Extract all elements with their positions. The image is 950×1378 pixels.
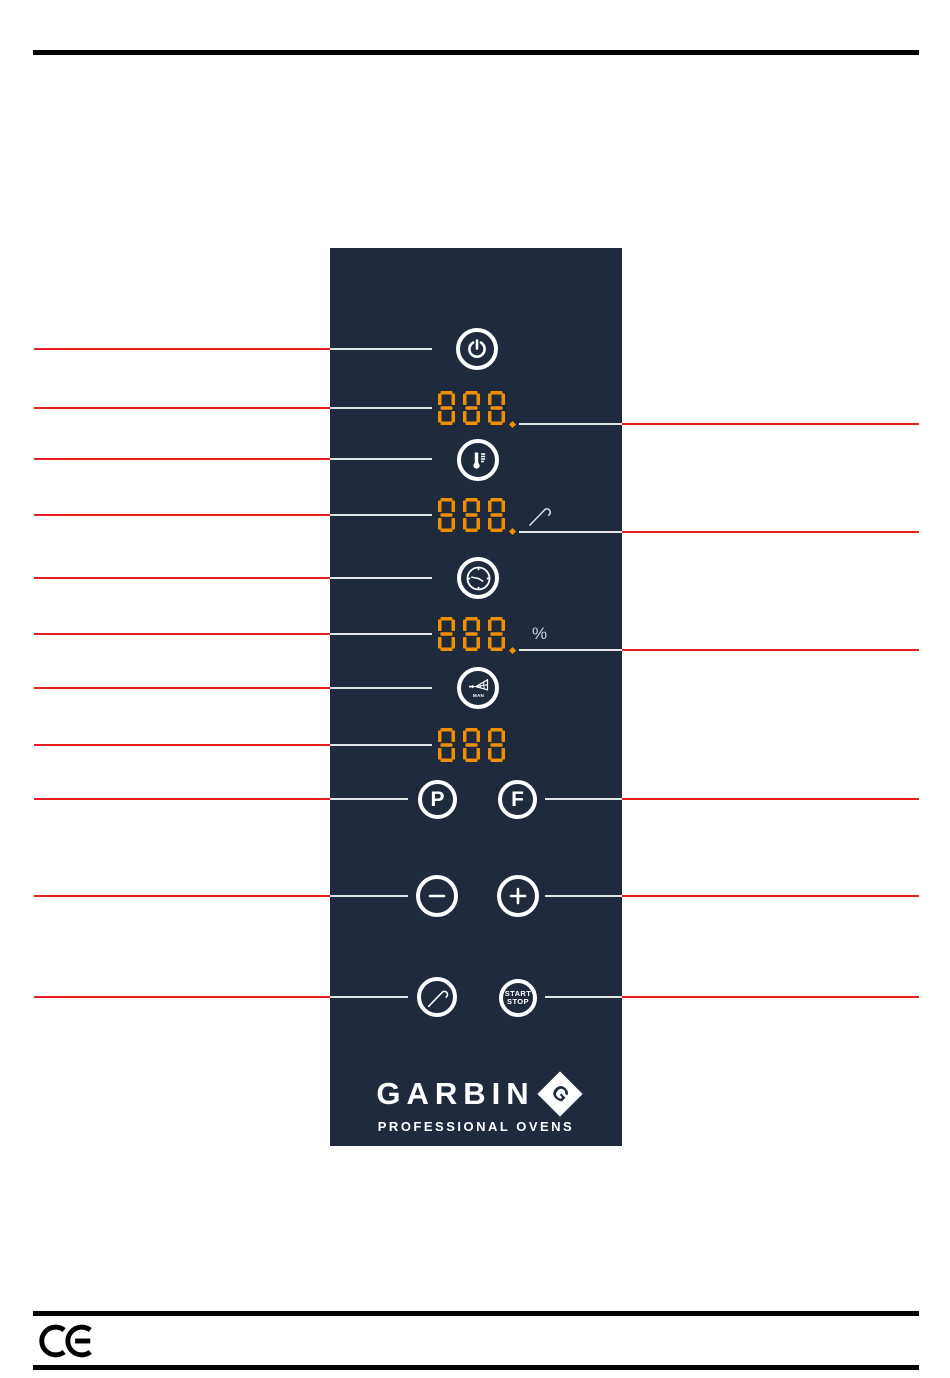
seven-segment-digit bbox=[438, 391, 455, 425]
garbin-diamond-logo: G bbox=[537, 1071, 582, 1116]
steam-spray-icon: MAN bbox=[465, 675, 492, 702]
minus-icon bbox=[425, 884, 449, 908]
percent-suffix: % bbox=[532, 624, 547, 644]
display-temperature bbox=[438, 391, 515, 425]
power-icon bbox=[465, 337, 489, 361]
seven-segment-digit bbox=[463, 728, 480, 762]
clock-icon bbox=[465, 565, 492, 592]
seven-segment-digit bbox=[463, 617, 480, 651]
footer-rule-bottom bbox=[33, 1365, 919, 1370]
display-humidity: % bbox=[438, 617, 547, 651]
decimal-point bbox=[509, 528, 516, 535]
display-program bbox=[438, 728, 505, 762]
seven-segment-digit bbox=[488, 391, 505, 425]
seven-segment-digit bbox=[438, 728, 455, 762]
display-core-temperature bbox=[438, 498, 553, 532]
stop-label: STOP bbox=[507, 998, 529, 1007]
program-button[interactable]: P bbox=[418, 780, 457, 819]
seven-segment-digit bbox=[488, 617, 505, 651]
minus-button[interactable] bbox=[416, 875, 458, 917]
seven-segment-digit bbox=[488, 728, 505, 762]
decimal-point bbox=[509, 647, 516, 654]
oven-control-panel: % MAN P F bbox=[330, 248, 622, 1146]
manual-page: % MAN P F bbox=[0, 0, 950, 1378]
ce-mark-icon bbox=[36, 1318, 98, 1364]
function-button[interactable]: F bbox=[498, 780, 537, 819]
seven-segment-digit bbox=[438, 617, 455, 651]
logo-monogram: G bbox=[546, 1080, 573, 1107]
plus-icon bbox=[506, 884, 530, 908]
plus-button[interactable] bbox=[497, 875, 539, 917]
decimal-point bbox=[509, 421, 516, 428]
core-probe-icon bbox=[425, 985, 450, 1010]
thermometer-icon bbox=[466, 448, 490, 472]
core-probe-button[interactable] bbox=[417, 977, 457, 1017]
seven-segment-digit bbox=[463, 391, 480, 425]
footer-rule-top bbox=[33, 1311, 919, 1316]
seven-segment-digit bbox=[463, 498, 480, 532]
steam-button[interactable]: MAN bbox=[457, 667, 499, 709]
power-button[interactable] bbox=[456, 328, 498, 370]
brand-tagline: PROFESSIONAL OVENS bbox=[330, 1119, 622, 1134]
core-probe-icon bbox=[526, 502, 553, 529]
start-stop-button[interactable]: START STOP bbox=[499, 979, 537, 1017]
top-rule bbox=[33, 50, 919, 55]
steam-man-label: MAN bbox=[472, 693, 484, 698]
garbin-logo: GARBIN G PROFESSIONAL OVENS bbox=[330, 1076, 622, 1134]
temperature-button[interactable] bbox=[457, 439, 499, 481]
seven-segment-digit bbox=[438, 498, 455, 532]
seven-segment-digit bbox=[488, 498, 505, 532]
function-button-label: F bbox=[511, 788, 524, 812]
brand-name: GARBIN bbox=[376, 1076, 534, 1112]
time-button[interactable] bbox=[457, 557, 499, 599]
program-button-label: P bbox=[430, 788, 444, 812]
